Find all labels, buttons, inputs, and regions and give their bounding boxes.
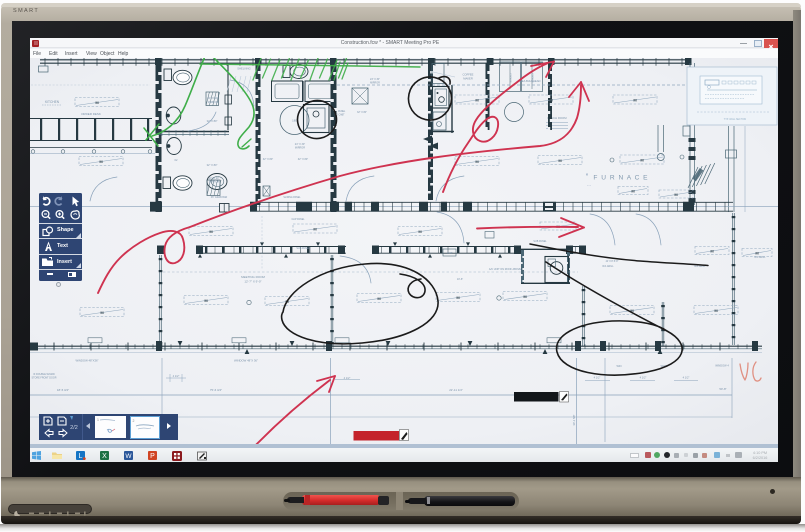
svg-text:A/C UNIT ON ROOF ABOVE: A/C UNIT ON ROOF ABOVE: [489, 268, 522, 271]
svg-text:P: P: [150, 453, 155, 460]
svg-text:18'-5 3/4": 18'-5 3/4": [57, 388, 69, 392]
svg-text:SHELVING: SHELVING: [237, 67, 250, 71]
svg-text:4 1/2": 4 1/2": [683, 376, 690, 380]
svg-text:MIRROR: MIRROR: [295, 146, 305, 149]
svg-text:4 1/2": 4 1/2": [640, 376, 647, 380]
svg-text:L: L: [79, 453, 83, 460]
svg-text:10'-6": 10'-6": [457, 278, 463, 281]
svg-text:STORE FRONT DOOR: STORE FRONT DOOR: [32, 377, 57, 380]
svg-text:32" X 80": 32" X 80": [263, 158, 274, 161]
svg-text:50'-8": 50'-8": [719, 387, 726, 391]
svg-text:SLIDING PANEL: SLIDING PANEL: [283, 196, 301, 199]
svg-text:WINDOW 4: WINDOW 4: [715, 364, 729, 368]
svg-text:F U R N A C E: F U R N A C E: [593, 175, 648, 182]
svg-text:44' X 8' 8'-8": 44' X 8' 8'-8": [606, 261, 619, 263]
svg-text:TYP. WALL SECTION: TYP. WALL SECTION: [724, 118, 747, 121]
svg-text:×: ×: [586, 172, 589, 177]
svg-text:MIRROR: MIRROR: [370, 81, 380, 84]
svg-text:22'-11 1/4": 22'-11 1/4": [449, 388, 463, 392]
svg-text:MIRROR: MIRROR: [208, 100, 219, 104]
svg-text:32" X 80": 32" X 80": [207, 163, 218, 167]
svg-text:COOLER: COOLER: [509, 73, 511, 83]
svg-text:SUB PANEL: SUB PANEL: [533, 240, 547, 243]
svg-text:MEETING ROOM: MEETING ROOM: [241, 275, 265, 279]
svg-text:36" GRAB BAR: 36" GRAB BAR: [211, 196, 228, 199]
svg-text:32" X 80": 32" X 80": [357, 111, 367, 114]
svg-text:WINDOW 48"X 36": WINDOW 48"X 36": [234, 359, 258, 363]
svg-text:R/A GRILL: R/A GRILL: [603, 265, 615, 268]
svg-text:1: 1: [97, 418, 99, 422]
svg-text:IF DOUBLE W/GRD: IF DOUBLE W/GRD: [33, 373, 55, 376]
svg-text:WIN: WIN: [616, 364, 621, 368]
svg-text:24" X 30": 24" X 30": [208, 96, 219, 100]
svg-text:4 1/2": 4 1/2": [594, 376, 601, 380]
svg-text:4 1/2": 4 1/2": [173, 374, 180, 378]
svg-text:W: W: [125, 453, 132, 460]
svg-text:WINDOW 48"X36": WINDOW 48"X36": [75, 359, 98, 363]
svg-text:KITCHEN: KITCHEN: [45, 100, 60, 104]
svg-text:MIRROR: MIRROR: [209, 180, 220, 184]
svg-text:⋯: ⋯: [587, 184, 591, 188]
svg-text:COFFEE: COFFEE: [463, 73, 474, 77]
svg-text:2/2: 2/2: [70, 425, 78, 431]
svg-text:MEA BULKHEAD: MEA BULKHEAD: [520, 79, 541, 83]
svg-text:12'-7" X 9'-0": 12'-7" X 9'-0": [244, 280, 261, 284]
svg-text:24" X 30": 24" X 30": [209, 176, 220, 180]
svg-text:CLIP PANEL: CLIP PANEL: [291, 218, 305, 221]
svg-text:ORDER DESK: ORDER DESK: [81, 112, 101, 116]
svg-text:75'-6 3/4": 75'-6 3/4": [210, 388, 222, 392]
svg-text:32" X 80": 32" X 80": [298, 158, 309, 161]
svg-text:MAKER: MAKER: [463, 77, 473, 81]
svg-text:39'-1 5/8": 39'-1 5/8": [572, 414, 576, 425]
svg-text:X: X: [102, 453, 107, 460]
svg-text:8'-8": 8'-8": [447, 251, 452, 255]
svg-text:2: 2: [133, 419, 135, 423]
svg-text:SUB PANEL: SUB PANEL: [296, 247, 310, 250]
svg-text:180: 180: [292, 119, 297, 123]
